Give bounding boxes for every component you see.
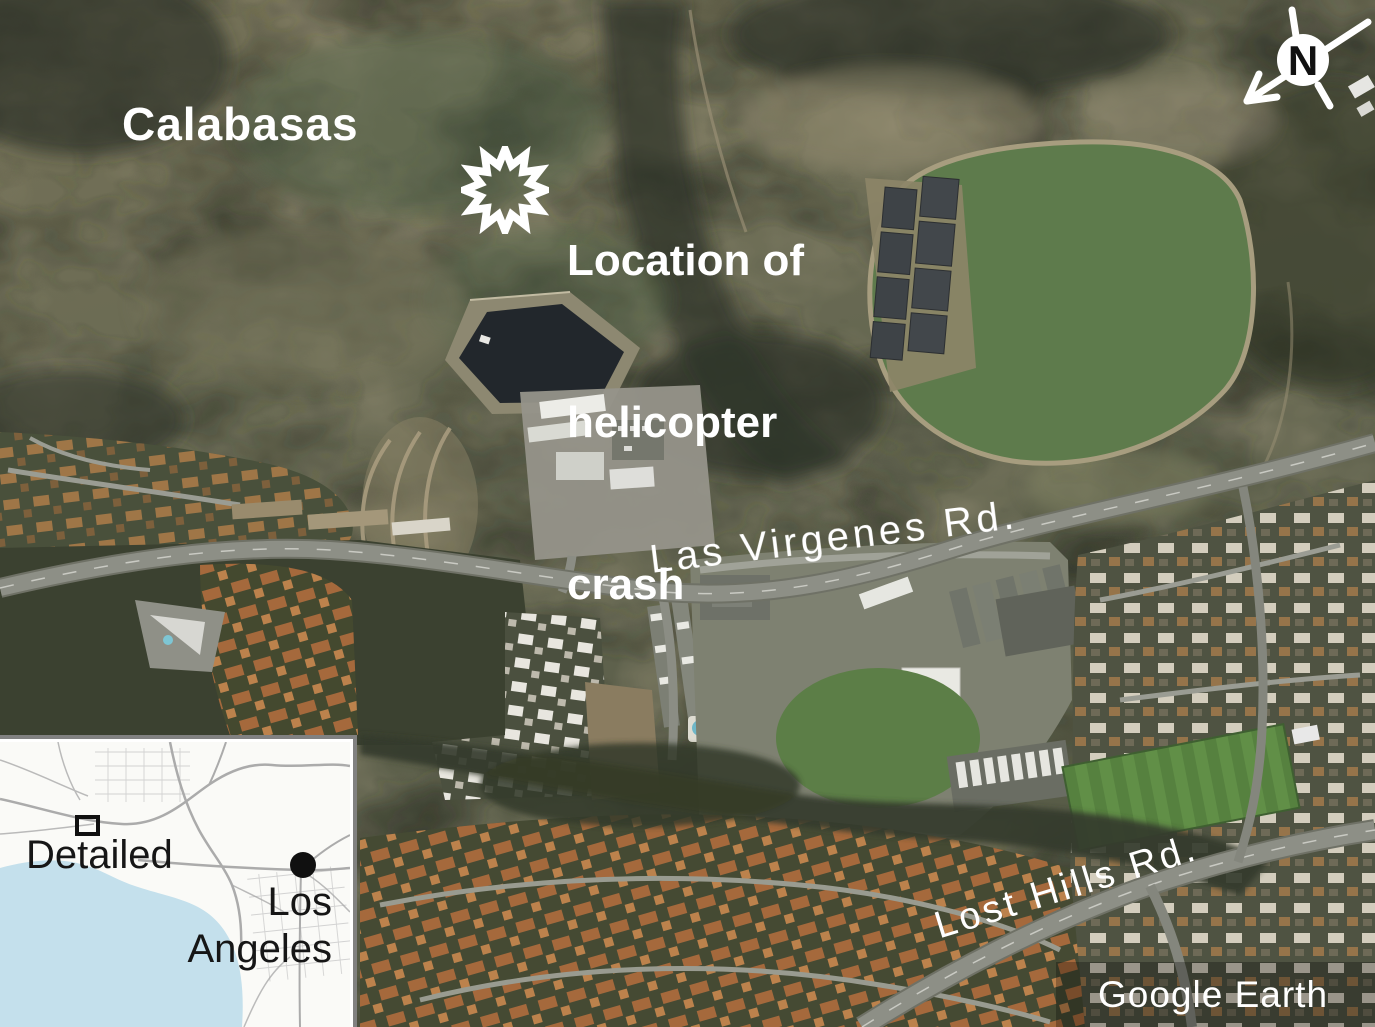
- locator-inset-map: Detailed Los Angeles: [0, 735, 357, 1027]
- crash-starburst-icon: [461, 146, 549, 234]
- north-compass-icon: N: [1232, 3, 1375, 118]
- detailed-label: Detailed: [26, 833, 173, 877]
- city-label-line2: Angeles: [187, 927, 332, 971]
- city-label-line1: Los: [268, 880, 333, 924]
- crash-label-line1: Location of: [567, 234, 804, 288]
- google-earth-attribution: Google Earth: [1098, 974, 1328, 1016]
- pasture-field: [865, 142, 1254, 463]
- los-angeles-dot: [290, 852, 316, 878]
- crash-label-line2: helicopter: [567, 396, 804, 450]
- locator-inset-frame: Detailed Los Angeles: [0, 739, 353, 1027]
- compass-north-letter: N: [1288, 37, 1318, 84]
- crash-location-label: Location of helicopter crash: [567, 126, 804, 720]
- region-label-calabasas: Calabasas: [122, 97, 359, 151]
- attribution-band: Google Earth: [1056, 962, 1375, 1027]
- locator-inset-svg: Detailed Los Angeles: [0, 742, 350, 1027]
- news-map-graphic: Calabasas Location of helicopter crash L…: [0, 0, 1375, 1027]
